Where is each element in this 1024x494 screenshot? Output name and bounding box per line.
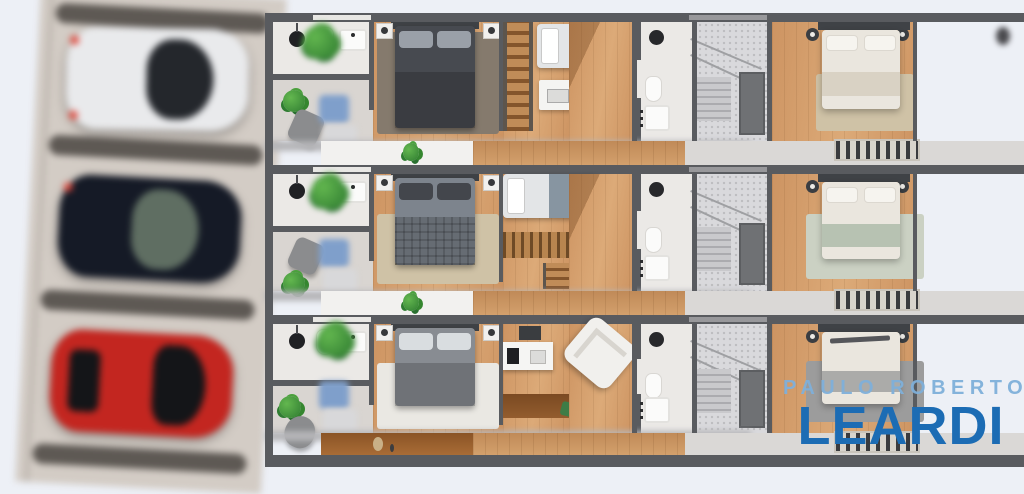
stairwell-wall-gap [689, 317, 767, 322]
wall [369, 22, 374, 110]
wall [913, 174, 917, 291]
stair-landing [739, 72, 765, 135]
nightstand [377, 176, 392, 190]
wall [767, 22, 772, 141]
range-hood [519, 326, 541, 340]
balcony-door-gap [313, 167, 371, 172]
wall [767, 324, 772, 433]
car-taillight [63, 182, 72, 191]
wall [692, 22, 697, 141]
sink [644, 105, 670, 131]
washbasin-bowl [289, 333, 305, 349]
nightstand [484, 24, 499, 38]
plant [403, 143, 419, 161]
wood-walkway [473, 291, 685, 315]
floor-plan-strip-2 [265, 165, 1024, 315]
wood-walkway [473, 433, 685, 455]
pillow [541, 28, 559, 64]
duvet [395, 217, 475, 265]
bathroom-2 [637, 174, 692, 291]
wall [692, 174, 697, 291]
pillow [437, 333, 471, 350]
blurred-object [996, 27, 1010, 45]
stair-landing [739, 370, 765, 428]
car-taillight [69, 111, 78, 120]
bedroom-2 [772, 22, 917, 141]
living-area [569, 324, 633, 433]
bench [834, 289, 920, 311]
wall [632, 174, 637, 291]
sink [644, 255, 670, 281]
toilet [646, 374, 661, 398]
pillow [507, 178, 525, 214]
bed-throw [822, 371, 900, 393]
stairwell [697, 324, 767, 433]
blurred-object [319, 239, 349, 267]
wall [637, 174, 641, 211]
pillow [399, 333, 433, 350]
wood-shelf-band [321, 433, 473, 455]
stair-landing [739, 223, 765, 285]
bench [834, 139, 920, 161]
car-windshield [150, 345, 207, 427]
kitchen-living-zone [503, 324, 569, 433]
bed-throw [822, 72, 900, 96]
double-bed [822, 332, 900, 404]
headboard [818, 174, 910, 182]
car-red [48, 328, 235, 439]
car-dark-navy [56, 173, 243, 284]
stairwell-wall-gap [689, 15, 767, 20]
nightstand [484, 176, 499, 190]
wall [265, 165, 1024, 174]
wall [767, 174, 772, 291]
pillow [864, 35, 896, 51]
stair-steps [697, 77, 731, 121]
stair-line [690, 38, 762, 70]
stair-steps [697, 227, 731, 271]
hallway [569, 174, 633, 291]
master-bedroom [373, 22, 503, 141]
plant [403, 293, 419, 311]
balcony [321, 141, 473, 165]
headboard [818, 22, 910, 30]
stair-steps [697, 369, 731, 413]
sofa [560, 314, 639, 393]
duvet [395, 72, 475, 128]
bathroom-2 [637, 22, 692, 141]
pillow [826, 35, 858, 51]
loft-zone [503, 22, 569, 141]
car-windshield [146, 39, 215, 120]
bedroom-2 [772, 324, 917, 433]
floor-plan-strip-3 [265, 315, 1024, 455]
bench [834, 431, 920, 453]
washbasin-bowl [289, 183, 305, 199]
bathroom-2 [637, 324, 692, 433]
stall-divider [32, 443, 247, 474]
wall [913, 22, 917, 141]
blurred-object [319, 381, 349, 409]
ladder [503, 22, 533, 131]
bed-throw [822, 224, 900, 247]
wall [637, 22, 641, 60]
stair-line [690, 190, 762, 222]
bedroom-2 [772, 174, 917, 291]
floor-plan-strip-1 [265, 13, 1024, 165]
wall [632, 22, 637, 141]
nightstand [377, 326, 392, 340]
wall [632, 324, 637, 433]
wall [499, 174, 503, 282]
master-bedroom [373, 174, 503, 291]
floor-shadow [569, 22, 633, 141]
plant [311, 175, 345, 209]
plant [317, 323, 351, 357]
double-bed [395, 328, 475, 406]
wall [369, 174, 374, 261]
floor-plans [265, 13, 1024, 467]
balcony [321, 291, 473, 315]
stairwell [697, 22, 767, 141]
master-bedroom [373, 324, 503, 433]
blurred-object [323, 409, 357, 433]
washbasin-bowl [649, 182, 664, 197]
wall [265, 315, 1024, 324]
pillow [399, 31, 433, 48]
pillow [826, 187, 858, 203]
sink [339, 29, 367, 51]
floor-shadow [569, 174, 633, 291]
plant [279, 396, 301, 418]
parking-edge-rail [25, 0, 54, 482]
wood-walkway [473, 141, 685, 165]
plant [303, 25, 337, 59]
wall [637, 324, 641, 359]
wall [913, 324, 917, 433]
wall [265, 455, 1024, 467]
duvet [395, 363, 475, 406]
nightstand [377, 24, 392, 38]
headboard [818, 324, 910, 332]
wall [265, 165, 273, 315]
blurred-object [323, 269, 357, 293]
toilet [646, 77, 661, 101]
nightstand [484, 326, 499, 340]
pillow [399, 183, 433, 200]
sink [644, 397, 670, 423]
figurine [373, 437, 383, 451]
parking-lane [15, 0, 287, 494]
pillow [437, 31, 471, 48]
wall [499, 22, 503, 131]
washbasin-bowl [649, 332, 664, 347]
stairwell-wall-gap [689, 167, 767, 172]
stall-divider [40, 289, 255, 320]
balcony-door-gap [313, 317, 371, 322]
wall [692, 324, 697, 433]
double-bed [395, 178, 475, 265]
blurred-object [319, 95, 349, 123]
hallway [569, 22, 633, 141]
wall [265, 13, 1024, 22]
car-taillight [70, 36, 79, 45]
bed-decor [830, 335, 890, 343]
double-bed [822, 182, 900, 259]
stall-divider [48, 135, 263, 166]
balcony-door-gap [313, 15, 371, 20]
wall [265, 315, 273, 455]
wall [265, 13, 273, 165]
stairwell [697, 174, 767, 291]
loft-zone [503, 174, 569, 291]
wall [499, 324, 503, 425]
double-bed [395, 26, 475, 128]
car-white [66, 27, 250, 132]
wall [369, 324, 374, 405]
pillow [864, 187, 896, 203]
kitchen-island [503, 342, 553, 370]
car-windshield [129, 188, 200, 271]
slatted-wardrobe [503, 232, 579, 258]
pillow [437, 183, 471, 200]
car-rear-window [67, 349, 101, 412]
toilet [646, 228, 661, 252]
stair-line [690, 340, 762, 372]
double-bed [822, 30, 900, 109]
washbasin-bowl [649, 30, 664, 45]
